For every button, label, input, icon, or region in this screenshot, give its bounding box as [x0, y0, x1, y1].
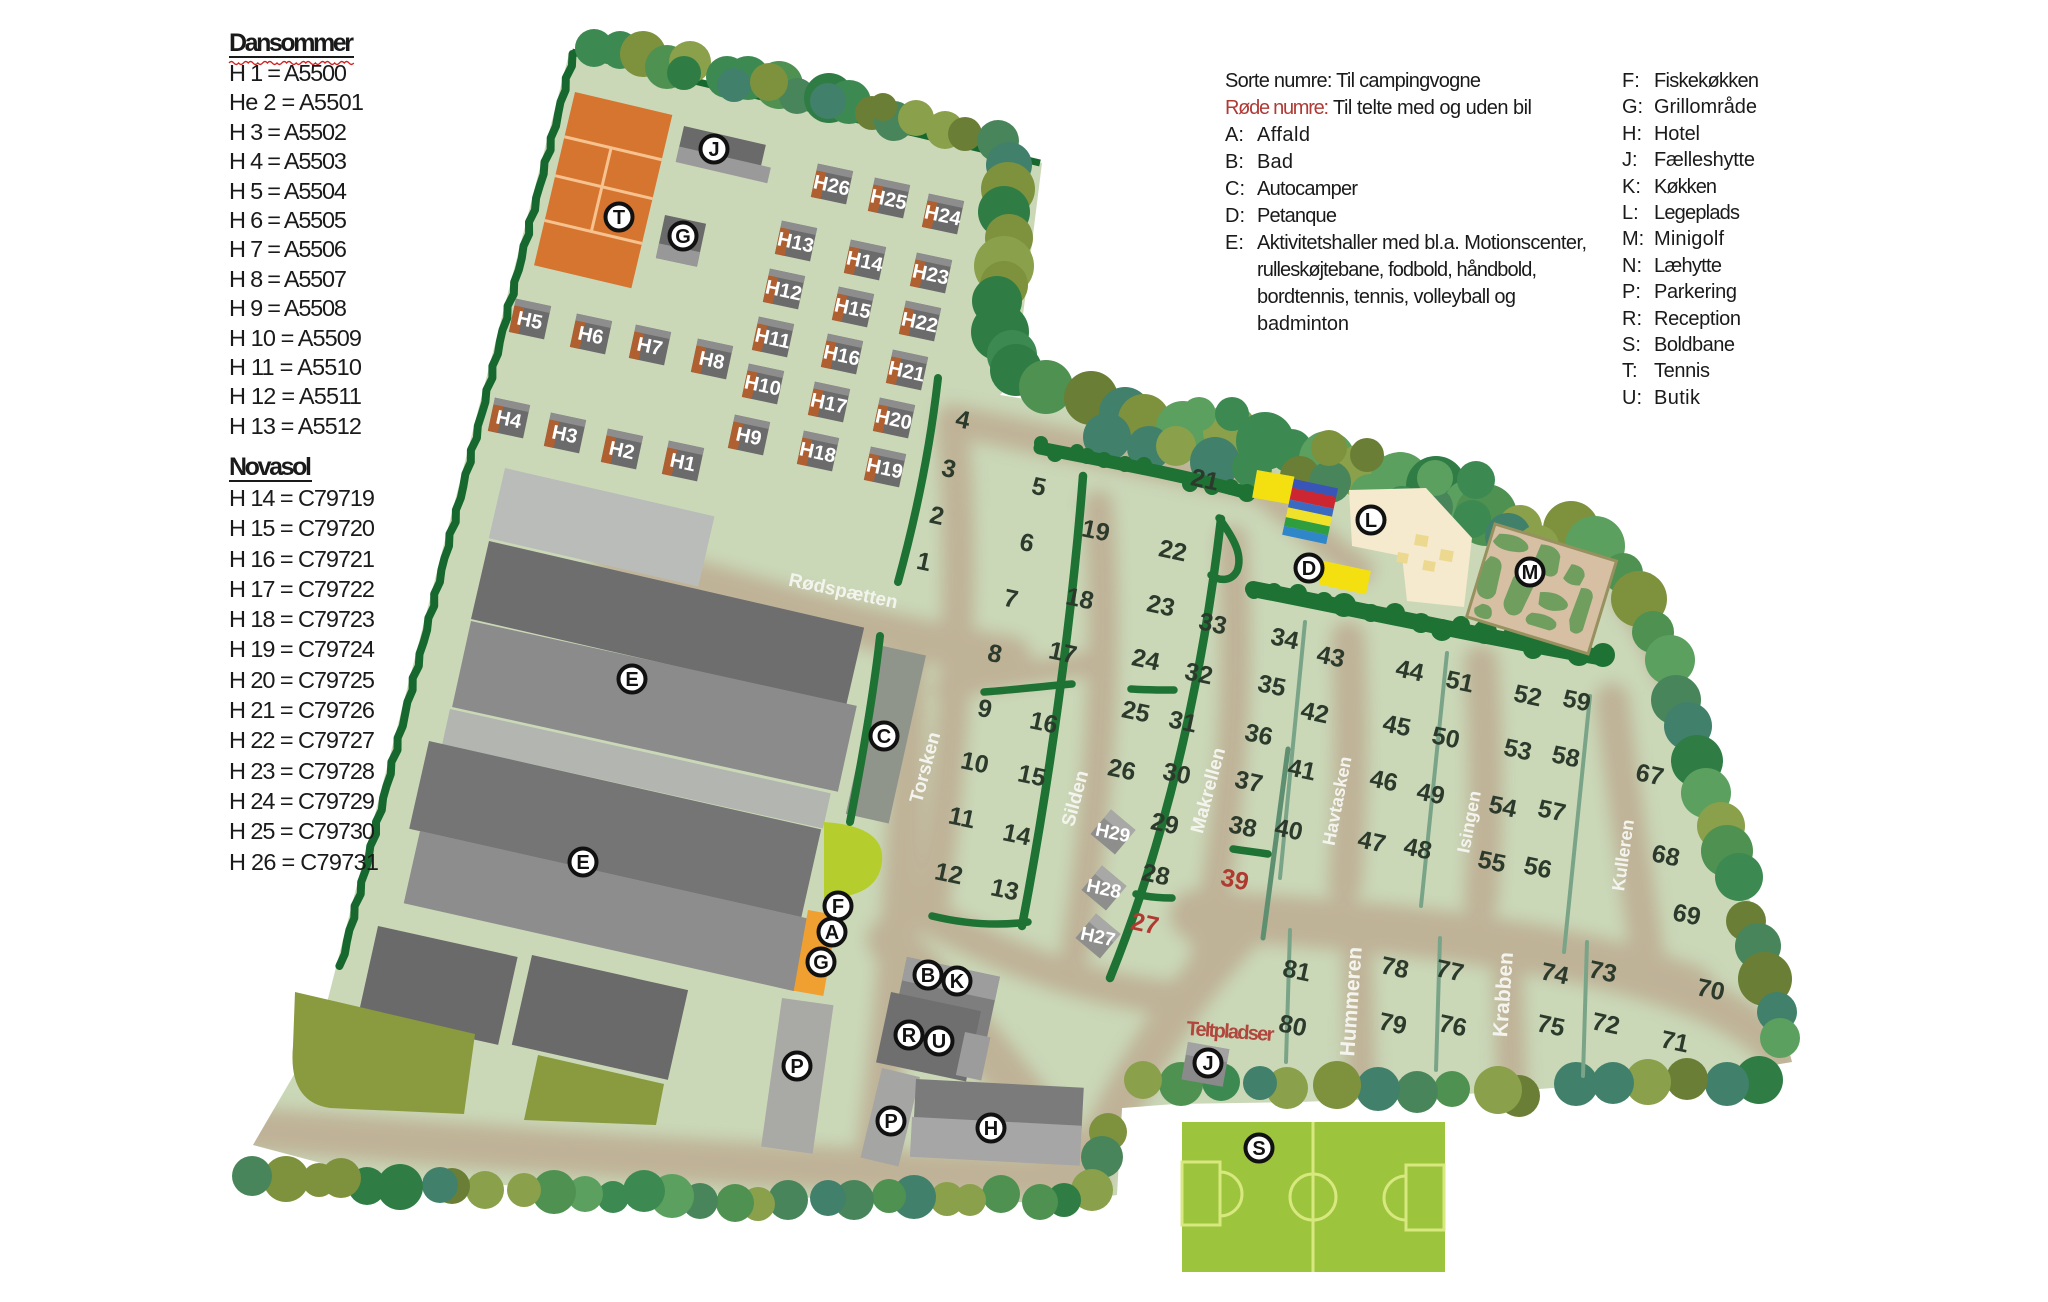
svg-text:J: J — [708, 139, 719, 161]
svg-text:B: B — [921, 965, 935, 987]
svg-text:U: U — [932, 1031, 946, 1053]
svg-text:H 9 = A5508: H 9 = A5508 — [229, 295, 347, 321]
svg-text:29: 29 — [1148, 807, 1181, 840]
svg-text:H 23 = C79728: H 23 = C79728 — [229, 758, 375, 784]
svg-text:41: 41 — [1285, 753, 1318, 786]
svg-text:59: 59 — [1560, 684, 1593, 717]
svg-text:H 13 = A5512: H 13 = A5512 — [229, 413, 362, 439]
svg-text:74: 74 — [1538, 957, 1571, 990]
svg-text:76: 76 — [1436, 1009, 1469, 1042]
svg-text:55: 55 — [1475, 845, 1508, 878]
svg-text:J:: J: — [1622, 149, 1638, 171]
svg-text:D: D — [1302, 558, 1316, 580]
svg-text:57: 57 — [1535, 794, 1568, 827]
svg-text:Butik: Butik — [1654, 387, 1701, 409]
svg-text:Til telte med og uden bil: Til telte med og uden bil — [1333, 97, 1532, 119]
svg-text:U:: U: — [1622, 387, 1642, 409]
svg-text:37: 37 — [1232, 765, 1265, 798]
svg-text:K:: K: — [1622, 176, 1641, 198]
svg-text:Reception: Reception — [1654, 308, 1741, 330]
svg-text:P: P — [884, 1111, 897, 1133]
svg-text:H 11 = A5510: H 11 = A5510 — [229, 354, 362, 380]
svg-text:24: 24 — [1129, 643, 1162, 676]
svg-text:47: 47 — [1355, 825, 1388, 858]
svg-text:H 8 = A5507: H 8 = A5507 — [229, 266, 347, 292]
svg-text:46: 46 — [1367, 764, 1400, 797]
svg-text:35: 35 — [1255, 669, 1288, 702]
svg-text:H 20 = C79725: H 20 = C79725 — [229, 667, 375, 693]
svg-text:81: 81 — [1280, 954, 1313, 987]
svg-text:P: P — [790, 1056, 803, 1078]
svg-text:Køkken: Køkken — [1654, 176, 1717, 198]
svg-text:R: R — [902, 1025, 917, 1047]
svg-text:C: C — [877, 726, 891, 748]
svg-text:H 19 = C79724: H 19 = C79724 — [229, 636, 375, 662]
svg-text:16: 16 — [1027, 706, 1060, 739]
svg-text:rulleskøjtebane, fodbold, hånd: rulleskøjtebane, fodbold, håndbold, — [1257, 259, 1537, 281]
svg-text:A: A — [825, 922, 839, 944]
svg-text:33: 33 — [1196, 607, 1229, 640]
svg-text:H 5 = A5504: H 5 = A5504 — [229, 178, 347, 204]
svg-text:E: E — [576, 852, 589, 874]
svg-text:Grillområde: Grillområde — [1654, 96, 1757, 118]
svg-text:10: 10 — [958, 746, 991, 779]
svg-text:Minigolf: Minigolf — [1654, 228, 1724, 250]
svg-text:12: 12 — [932, 857, 965, 890]
svg-text:13: 13 — [988, 873, 1021, 906]
svg-text:Petanque: Petanque — [1257, 205, 1337, 227]
svg-text:S: S — [1252, 1138, 1265, 1160]
svg-text:Dansommer: Dansommer — [229, 29, 354, 57]
svg-text:Bad: Bad — [1257, 151, 1293, 173]
svg-text:54: 54 — [1486, 790, 1519, 823]
svg-text:73: 73 — [1586, 955, 1619, 988]
svg-text:H 4 = A5503: H 4 = A5503 — [229, 148, 347, 174]
svg-text:22: 22 — [1156, 534, 1189, 567]
svg-text:Legeplads: Legeplads — [1654, 202, 1740, 224]
svg-text:Tennis: Tennis — [1654, 360, 1710, 382]
svg-text:21: 21 — [1188, 463, 1221, 496]
svg-text:19: 19 — [1079, 514, 1112, 547]
svg-text:H 18 = C79723: H 18 = C79723 — [229, 606, 375, 632]
svg-text:52: 52 — [1511, 679, 1544, 712]
svg-text:30: 30 — [1160, 757, 1193, 790]
svg-text:36: 36 — [1242, 718, 1275, 751]
svg-text:50: 50 — [1429, 721, 1462, 754]
svg-text:H 1 = A5500: H 1 = A5500 — [229, 60, 347, 86]
svg-text:28: 28 — [1139, 858, 1172, 891]
svg-text:K: K — [950, 971, 965, 993]
svg-text:M:: M: — [1622, 228, 1644, 250]
svg-text:39: 39 — [1218, 863, 1251, 896]
svg-text:H 7 = A5506: H 7 = A5506 — [229, 236, 347, 262]
svg-text:26: 26 — [1105, 753, 1138, 786]
svg-text:H 22 = C79727: H 22 = C79727 — [229, 727, 375, 753]
svg-text:70: 70 — [1694, 973, 1727, 1006]
svg-text:Autocamper: Autocamper — [1257, 178, 1358, 200]
svg-text:34: 34 — [1268, 622, 1301, 655]
svg-text:H: H — [984, 1118, 998, 1140]
svg-text:45: 45 — [1380, 709, 1413, 742]
svg-text:78: 78 — [1378, 951, 1411, 984]
svg-text:53: 53 — [1501, 733, 1534, 766]
svg-text:L: L — [1365, 510, 1377, 532]
svg-text:S:: S: — [1622, 334, 1641, 356]
svg-text:L:: L: — [1622, 202, 1639, 224]
svg-text:44: 44 — [1393, 654, 1426, 687]
svg-text:68: 68 — [1649, 839, 1682, 872]
svg-text:48: 48 — [1401, 832, 1434, 865]
svg-text:H 26 = C79731: H 26 = C79731 — [229, 849, 379, 875]
svg-text:G:: G: — [1622, 96, 1643, 118]
svg-text:15: 15 — [1015, 759, 1048, 792]
svg-text:72: 72 — [1589, 1007, 1622, 1040]
svg-text:14: 14 — [1000, 818, 1033, 851]
svg-text:F: F — [832, 896, 844, 918]
svg-text:H 3 = A5502: H 3 = A5502 — [229, 119, 347, 145]
svg-text:H 15 = C79720: H 15 = C79720 — [229, 515, 375, 541]
svg-text:P:: P: — [1622, 281, 1641, 303]
svg-text:M: M — [1522, 562, 1539, 584]
svg-text:38: 38 — [1226, 810, 1259, 843]
svg-text:H 10 = A5509: H 10 = A5509 — [229, 325, 362, 351]
svg-text:69: 69 — [1670, 898, 1703, 931]
svg-text:42: 42 — [1298, 696, 1331, 729]
svg-text:80: 80 — [1276, 1009, 1309, 1042]
svg-text:bordtennis, tennis, volleyball: bordtennis, tennis, volleyball og — [1257, 286, 1516, 308]
svg-text:R:: R: — [1622, 308, 1642, 330]
svg-text:23: 23 — [1144, 589, 1177, 622]
svg-text:H 14 = C79719: H 14 = C79719 — [229, 485, 375, 511]
svg-text:H 12 = A5511: H 12 = A5511 — [229, 383, 362, 409]
svg-text:Novasol: Novasol — [229, 453, 312, 481]
svg-text:H:: H: — [1622, 123, 1642, 145]
svg-text:E: E — [625, 669, 638, 691]
svg-text:25: 25 — [1119, 695, 1152, 728]
svg-text:56: 56 — [1521, 851, 1554, 884]
svg-text:Boldbane: Boldbane — [1654, 334, 1735, 356]
svg-text:32: 32 — [1182, 657, 1215, 690]
svg-text:27: 27 — [1128, 907, 1161, 940]
svg-text:G: G — [813, 952, 829, 974]
svg-text:T: T — [613, 207, 625, 229]
svg-text:31: 31 — [1166, 705, 1199, 738]
svg-text:H 24 = C79729: H 24 = C79729 — [229, 788, 375, 814]
svg-text:79: 79 — [1376, 1007, 1409, 1040]
svg-text:Fiskekøkken: Fiskekøkken — [1654, 70, 1759, 92]
svg-text:H 6 = A5505: H 6 = A5505 — [229, 207, 347, 233]
svg-text:Fælleshytte: Fælleshytte — [1654, 149, 1755, 171]
svg-text:51: 51 — [1443, 665, 1476, 698]
svg-text:B:: B: — [1225, 151, 1244, 173]
svg-text:77: 77 — [1433, 954, 1466, 987]
svg-text:Røde numre:: Røde numre: — [1225, 97, 1329, 119]
svg-text:Hotel: Hotel — [1654, 123, 1700, 145]
svg-text:F:: F: — [1622, 70, 1640, 92]
svg-text:T:: T: — [1622, 360, 1638, 382]
svg-text:C:: C: — [1225, 178, 1245, 200]
svg-text:75: 75 — [1534, 1009, 1567, 1042]
svg-text:58: 58 — [1549, 740, 1582, 773]
svg-text:71: 71 — [1658, 1025, 1691, 1058]
svg-text:Parkering: Parkering — [1654, 281, 1737, 303]
svg-text:J: J — [1202, 1053, 1213, 1075]
svg-text:H 21 = C79726: H 21 = C79726 — [229, 697, 375, 723]
svg-text:H 25 = C79730: H 25 = C79730 — [229, 818, 375, 844]
svg-text:He 2 = A5501: He 2 = A5501 — [229, 89, 364, 115]
svg-text:Sorte numre: Til campingvogne: Sorte numre: Til campingvogne — [1225, 70, 1481, 92]
svg-text:43: 43 — [1314, 640, 1347, 673]
svg-text:badminton: badminton — [1257, 313, 1349, 335]
svg-text:Læhytte: Læhytte — [1654, 255, 1722, 277]
svg-text:D:: D: — [1225, 205, 1245, 227]
svg-text:Aktivitetshaller med bl.a. Mot: Aktivitetshaller med bl.a. Motionscenter… — [1257, 232, 1587, 254]
svg-text:40: 40 — [1272, 813, 1305, 846]
svg-text:E:: E: — [1225, 232, 1244, 254]
svg-text:17: 17 — [1046, 636, 1079, 669]
svg-text:49: 49 — [1414, 777, 1447, 810]
svg-text:18: 18 — [1063, 582, 1096, 615]
svg-text:G: G — [675, 226, 691, 248]
svg-text:A:: A: — [1225, 124, 1244, 146]
svg-text:67: 67 — [1633, 758, 1666, 791]
svg-text:H 16 = C79721: H 16 = C79721 — [229, 546, 375, 572]
svg-text:N:: N: — [1622, 255, 1642, 277]
svg-text:H 17 = C79722: H 17 = C79722 — [229, 576, 375, 602]
svg-text:Affald: Affald — [1257, 124, 1310, 146]
